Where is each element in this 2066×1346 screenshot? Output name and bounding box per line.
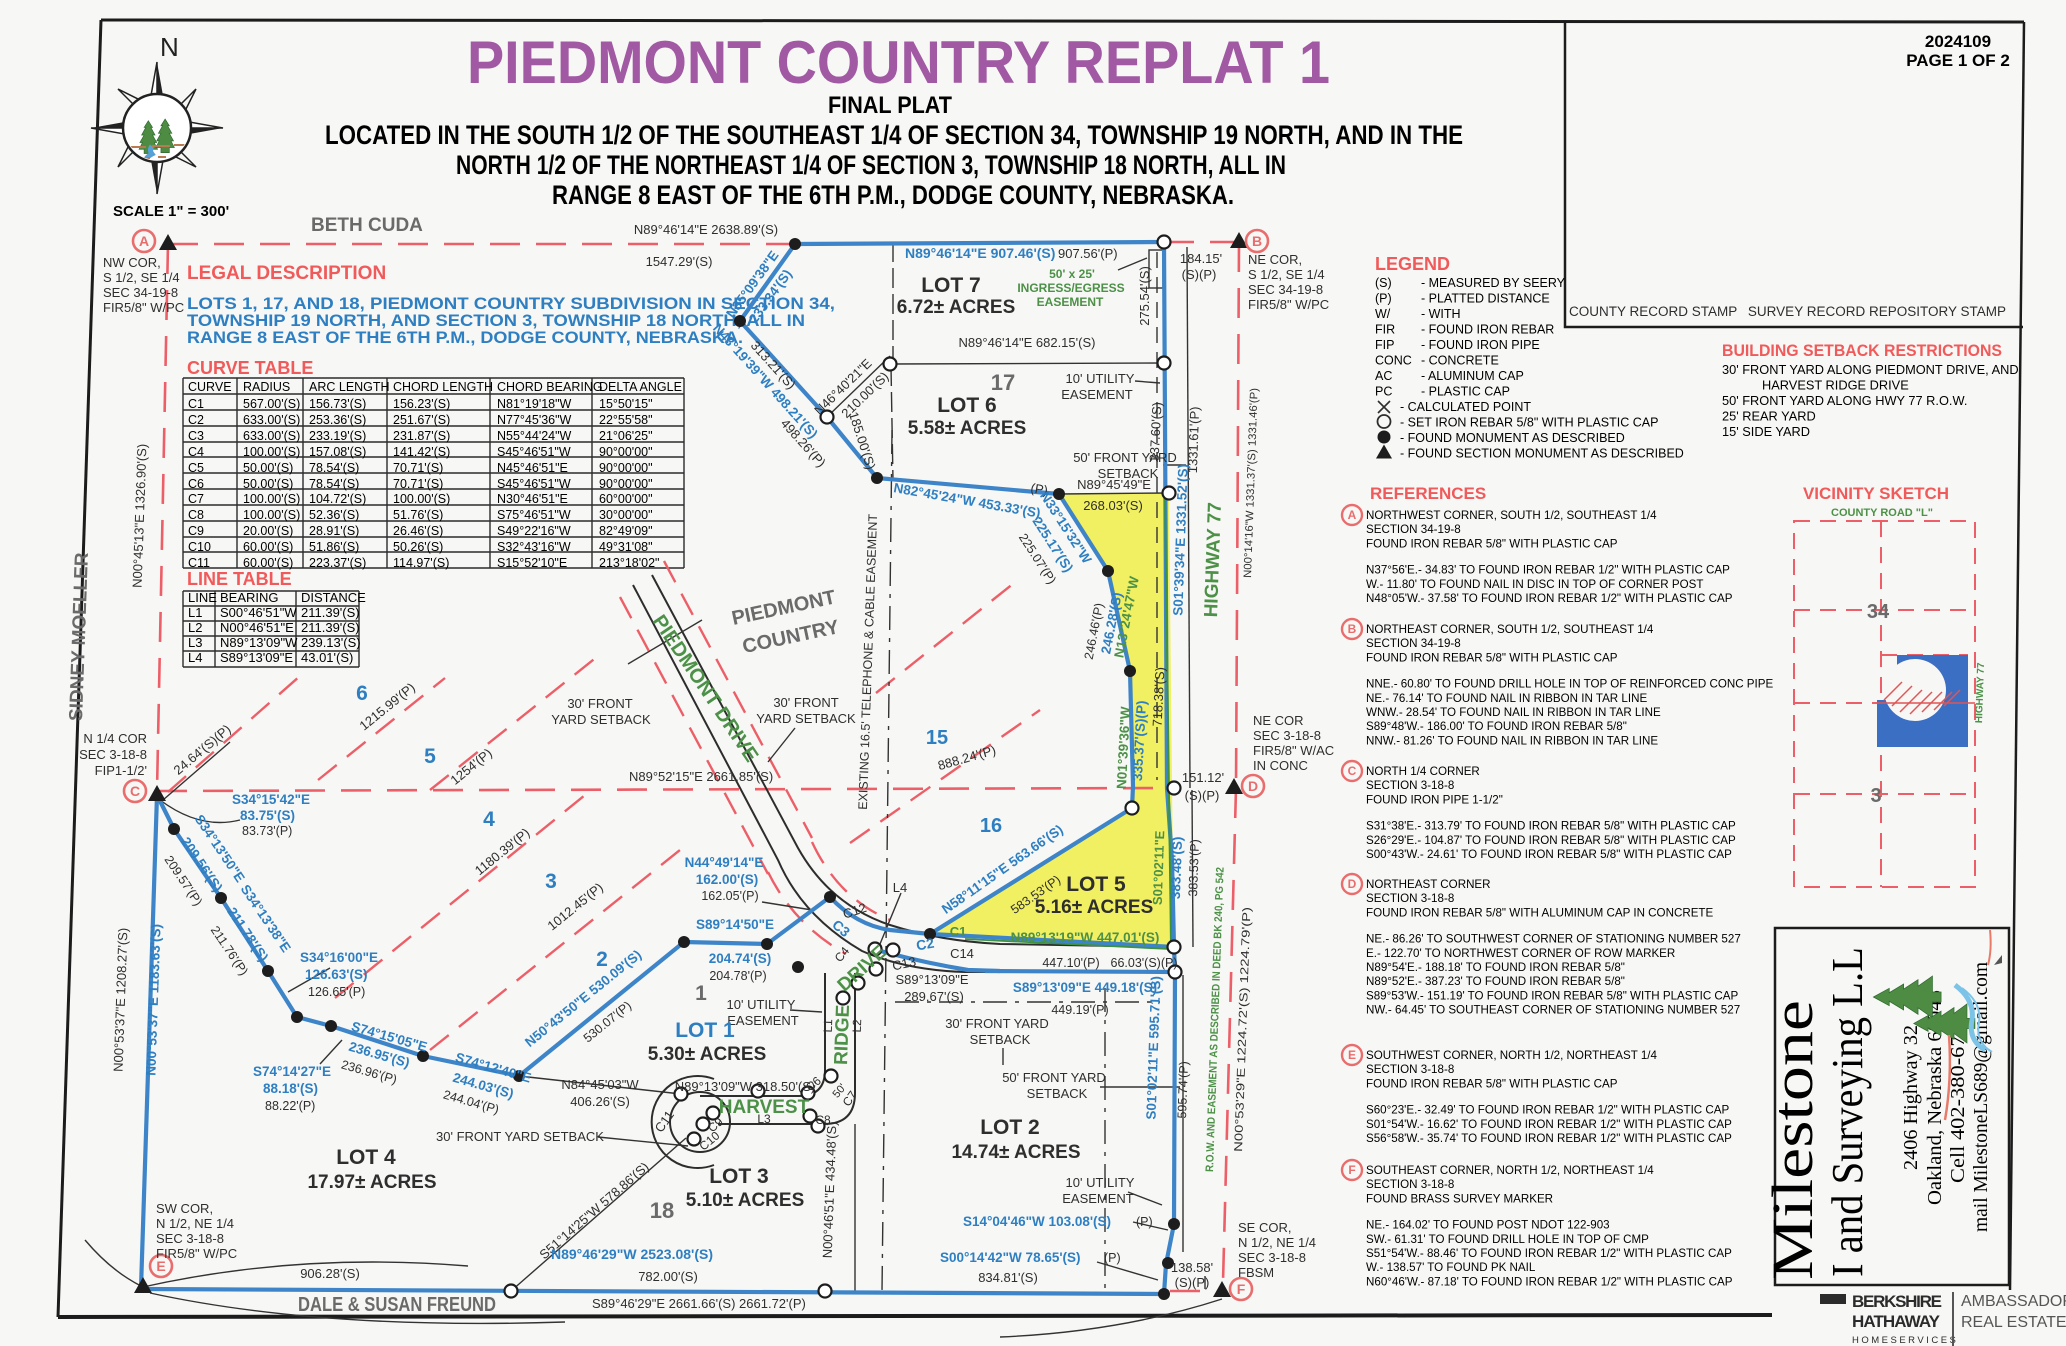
svg-text:BUILDING SETBACK RESTRICTIONS: BUILDING SETBACK RESTRICTIONS bbox=[1722, 341, 2002, 360]
svg-text:N 1/4 COR: N 1/4 COR bbox=[83, 731, 147, 746]
svg-text:1331.61'(P): 1331.61'(P) bbox=[1185, 406, 1202, 473]
svg-text:782.00'(S): 782.00'(S) bbox=[638, 1269, 698, 1284]
svg-text:FIP: FIP bbox=[1375, 338, 1394, 352]
svg-text:SEC 34-19-8: SEC 34-19-8 bbox=[103, 285, 178, 300]
svg-text:SE COR,: SE COR, bbox=[1238, 1220, 1291, 1235]
svg-text:BEARING: BEARING bbox=[220, 590, 279, 605]
svg-text:N 1/2, NE 1/4: N 1/2, NE 1/4 bbox=[156, 1216, 234, 1231]
svg-text:LEGEND: LEGEND bbox=[1375, 254, 1450, 274]
svg-text:N89°45'49"E: N89°45'49"E bbox=[1077, 477, 1151, 492]
svg-text:88.18'(S): 88.18'(S) bbox=[263, 1081, 318, 1096]
svg-text:43.01'(S): 43.01'(S) bbox=[301, 650, 353, 665]
svg-text:HIGHWAY 77: HIGHWAY 77 bbox=[1201, 502, 1226, 618]
svg-text:5.58± ACRES: 5.58± ACRES bbox=[908, 418, 1027, 439]
svg-text:83.75'(S): 83.75'(S) bbox=[240, 808, 295, 823]
svg-text:C10: C10 bbox=[188, 540, 211, 554]
svg-text:5.10± ACRES: 5.10± ACRES bbox=[686, 1190, 805, 1211]
svg-text:- SET IRON REBAR 5/8" WITH PLA: - SET IRON REBAR 5/8" WITH PLASTIC CAP bbox=[1400, 416, 1658, 430]
svg-text:SECTION 34-19-8: SECTION 34-19-8 bbox=[1366, 637, 1461, 650]
svg-text:I and Surveying L.L: I and Surveying L.L bbox=[1823, 947, 1872, 1277]
svg-text:FIR5/8" W/AC: FIR5/8" W/AC bbox=[1253, 743, 1334, 758]
svg-text:S26°29'E.- 104.87' TO FOUND IR: S26°29'E.- 104.87' TO FOUND IRON REBAR 5… bbox=[1366, 834, 1736, 847]
svg-text:184.15': 184.15' bbox=[1180, 251, 1222, 266]
svg-text:S 1/2, SE 1/4: S 1/2, SE 1/4 bbox=[1248, 267, 1325, 282]
svg-text:2024109: 2024109 bbox=[1925, 32, 1991, 51]
svg-text:17: 17 bbox=[991, 370, 1015, 395]
svg-text:CONC: CONC bbox=[1375, 354, 1412, 368]
svg-text:COUNTY RECORD STAMP: COUNTY RECORD STAMP bbox=[1569, 304, 1737, 319]
svg-text:RANGE 8 EAST OF THE 6TH P.M.,: RANGE 8 EAST OF THE 6TH P.M., DODGE COUN… bbox=[187, 329, 743, 347]
svg-text:N84°45'03"W: N84°45'03"W bbox=[561, 1077, 639, 1092]
svg-text:N48°05'W.- 37.58' TO FOUND IRO: N48°05'W.- 37.58' TO FOUND IRON REBAR 1/… bbox=[1366, 592, 1733, 605]
svg-text:15: 15 bbox=[926, 727, 948, 749]
svg-text:N45°46'51"E: N45°46'51"E bbox=[497, 461, 568, 475]
svg-text:S 1/2, SE 1/4: S 1/2, SE 1/4 bbox=[103, 270, 180, 285]
svg-text:RANGE 8 EAST OF THE 6TH P.M.,: RANGE 8 EAST OF THE 6TH P.M., DODGE COUN… bbox=[552, 180, 1234, 210]
svg-text:151.12': 151.12' bbox=[1182, 770, 1224, 785]
svg-text:10' UTILITY: 10' UTILITY bbox=[1066, 1175, 1135, 1190]
svg-text:25' REAR YARD: 25' REAR YARD bbox=[1722, 409, 1816, 424]
svg-text:50' x 25': 50' x 25' bbox=[1049, 267, 1095, 281]
svg-text:C5: C5 bbox=[188, 461, 204, 475]
svg-text:S00°46'51"W: S00°46'51"W bbox=[220, 605, 297, 620]
svg-text:NW.- 64.45' TO SOUTHEAST CORNE: NW.- 64.45' TO SOUTHEAST CORNER OF STATI… bbox=[1366, 1004, 1740, 1017]
svg-text:S15°52'10"E: S15°52'10"E bbox=[497, 556, 567, 570]
svg-text:SEC 3-18-8: SEC 3-18-8 bbox=[1253, 728, 1321, 743]
svg-text:NE.- 86.26' TO SOUTHWEST CORNE: NE.- 86.26' TO SOUTHWEST CORNER OF STATI… bbox=[1366, 933, 1741, 946]
svg-text:LOCATED IN THE SOUTH 1/2 OF TH: LOCATED IN THE SOUTH 1/2 OF THE SOUTHEAS… bbox=[325, 120, 1463, 150]
svg-text:C11: C11 bbox=[188, 556, 210, 570]
svg-text:406.26'(S): 406.26'(S) bbox=[570, 1094, 630, 1109]
svg-text:(S)(P): (S)(P) bbox=[1185, 788, 1220, 803]
svg-text:W.- 138.57' TO FOUND PK NAIL: W.- 138.57' TO FOUND PK NAIL bbox=[1366, 1261, 1536, 1274]
svg-text:449.19'(P): 449.19'(P) bbox=[1051, 1003, 1108, 1017]
svg-text:S01°54'W.- 16.62' TO FOUND IRO: S01°54'W.- 16.62' TO FOUND IRON REBAR 1/… bbox=[1366, 1118, 1732, 1131]
svg-text:S45°46'51"W: S45°46'51"W bbox=[497, 445, 571, 459]
svg-text:NORTH 1/4 CORNER: NORTH 1/4 CORNER bbox=[1366, 765, 1480, 778]
svg-text:L4: L4 bbox=[188, 650, 202, 665]
svg-text:30°00'00": 30°00'00" bbox=[599, 508, 653, 522]
svg-text:211.39'(S): 211.39'(S) bbox=[301, 620, 360, 635]
svg-text:447.10'(P): 447.10'(P) bbox=[1042, 956, 1099, 970]
svg-text:S45°46'51"W: S45°46'51"W bbox=[497, 477, 571, 491]
svg-text:HATHAWAY: HATHAWAY bbox=[1852, 1312, 1941, 1331]
svg-text:PC: PC bbox=[1375, 385, 1392, 399]
svg-text:28.91'(S): 28.91'(S) bbox=[309, 524, 359, 538]
svg-text:5: 5 bbox=[424, 745, 436, 768]
svg-text:HOMESERVICES: HOMESERVICES bbox=[1852, 1335, 1958, 1346]
svg-text:1: 1 bbox=[695, 982, 707, 1005]
svg-text:104.72'(S): 104.72'(S) bbox=[309, 492, 366, 506]
svg-text:F: F bbox=[1348, 1163, 1355, 1177]
svg-text:N30°46'51"E: N30°46'51"E bbox=[497, 492, 568, 506]
svg-text:SECTION 3-18-8: SECTION 3-18-8 bbox=[1366, 1178, 1454, 1191]
svg-text:10' UTILITY: 10' UTILITY bbox=[727, 997, 796, 1012]
svg-text:FOUND IRON REBAR 5/8" WITH PLA: FOUND IRON REBAR 5/8" WITH PLASTIC CAP bbox=[1366, 537, 1618, 550]
svg-text:- ALUMINUM CAP: - ALUMINUM CAP bbox=[1421, 369, 1524, 383]
svg-text:(S)(P): (S)(P) bbox=[1182, 267, 1217, 282]
svg-text:COUNTY ROAD "L": COUNTY ROAD "L" bbox=[1831, 507, 1933, 519]
svg-text:FOUND IRON REBAR 5/8" WITH PLA: FOUND IRON REBAR 5/8" WITH PLASTIC CAP bbox=[1366, 651, 1618, 664]
svg-text:E.- 122.70' TO NORTHWEST CORNE: E.- 122.70' TO NORTHWEST CORNER OF ROW M… bbox=[1366, 947, 1675, 960]
svg-text:S51°54'W.- 88.46' TO FOUND IRO: S51°54'W.- 88.46' TO FOUND IRON REBAR 1/… bbox=[1366, 1247, 1732, 1260]
svg-text:S89°13'09"E 449.18'(S): S89°13'09"E 449.18'(S) bbox=[1013, 980, 1157, 995]
svg-text:337.60'(S): 337.60'(S) bbox=[1146, 402, 1164, 462]
svg-text:239.13'(S): 239.13'(S) bbox=[301, 635, 361, 650]
svg-text:C1: C1 bbox=[950, 924, 967, 939]
svg-text:SECTION 34-19-8: SECTION 34-19-8 bbox=[1366, 523, 1461, 536]
svg-text:LINE: LINE bbox=[188, 590, 217, 605]
svg-text:126.63'(S): 126.63'(S) bbox=[305, 967, 368, 982]
svg-text:204.78'(P): 204.78'(P) bbox=[709, 969, 766, 983]
svg-text:253.36'(S): 253.36'(S) bbox=[309, 413, 366, 427]
svg-text:CURVE: CURVE bbox=[188, 380, 232, 394]
svg-text:DALE & SUSAN FREUND: DALE & SUSAN FREUND bbox=[298, 1294, 496, 1316]
svg-text:383.53'(P): 383.53'(P) bbox=[1186, 839, 1202, 897]
svg-text:S56°58'W.- 35.74' TO FOUND IRO: S56°58'W.- 35.74' TO FOUND IRON REBAR 1/… bbox=[1366, 1132, 1732, 1145]
svg-text:CURVE TABLE: CURVE TABLE bbox=[187, 358, 313, 378]
svg-text:14.74± ACRES: 14.74± ACRES bbox=[951, 1142, 1080, 1163]
svg-text:FOUND IRON REBAR 5/8" WITH PLA: FOUND IRON REBAR 5/8" WITH PLASTIC CAP bbox=[1366, 1077, 1618, 1090]
svg-text:100.00'(S): 100.00'(S) bbox=[243, 445, 300, 459]
svg-text:N44°49'14"E: N44°49'14"E bbox=[685, 855, 764, 870]
svg-text:15°50'15": 15°50'15" bbox=[599, 397, 653, 411]
svg-text:90°00'00": 90°00'00" bbox=[599, 461, 653, 475]
svg-text:N89°52'15"E 2661.85'(S): N89°52'15"E 2661.85'(S) bbox=[629, 769, 773, 784]
svg-text:5.30± ACRES: 5.30± ACRES bbox=[648, 1044, 767, 1065]
svg-text:N81°19'18"W: N81°19'18"W bbox=[497, 397, 572, 411]
svg-text:LOT 5: LOT 5 bbox=[1066, 873, 1126, 896]
svg-text:SEC 34-19-8: SEC 34-19-8 bbox=[1248, 282, 1323, 297]
svg-text:AMBASSADOR: AMBASSADOR bbox=[1961, 1293, 2066, 1310]
svg-text:F: F bbox=[1237, 1281, 1246, 1297]
svg-text:82°49'09": 82°49'09" bbox=[599, 524, 653, 538]
svg-text:718.38'(S): 718.38'(S) bbox=[1149, 667, 1167, 727]
svg-text:C8: C8 bbox=[188, 508, 204, 522]
svg-text:HIGHWAY 77: HIGHWAY 77 bbox=[1974, 662, 1987, 723]
svg-text:3: 3 bbox=[545, 870, 557, 893]
svg-text:AC: AC bbox=[1375, 369, 1392, 383]
svg-text:B: B bbox=[1252, 233, 1262, 249]
svg-text:49°31'08": 49°31'08" bbox=[599, 540, 653, 554]
svg-text:N37°56'E.- 34.83' TO FOUND IRO: N37°56'E.- 34.83' TO FOUND IRON REBAR 1/… bbox=[1366, 564, 1730, 577]
svg-text:78.54'(S): 78.54'(S) bbox=[309, 461, 359, 475]
svg-text:138.58': 138.58' bbox=[1171, 1260, 1213, 1275]
svg-text:N: N bbox=[160, 32, 179, 62]
svg-text:4: 4 bbox=[483, 808, 495, 831]
svg-text:NNE.- 60.80' TO FOUND DRILL HO: NNE.- 60.80' TO FOUND DRILL HOLE IN TOP … bbox=[1366, 678, 1773, 691]
svg-text:SETBACK: SETBACK bbox=[970, 1032, 1031, 1047]
svg-text:S89°48'W.- 186.00' TO FOUND IR: S89°48'W.- 186.00' TO FOUND IRON REBAR 5… bbox=[1366, 720, 1627, 733]
svg-text:S31°38'E.- 313.79' TO FOUND IR: S31°38'E.- 313.79' TO FOUND IRON REBAR 5… bbox=[1366, 820, 1736, 833]
svg-text:CHORD BEARING: CHORD BEARING bbox=[497, 380, 603, 394]
svg-text:50' FRONT YARD: 50' FRONT YARD bbox=[1002, 1070, 1106, 1085]
svg-text:SOUTHWEST CORNER, NORTH 1/2, N: SOUTHWEST CORNER, NORTH 1/2, NORTHEAST 1… bbox=[1366, 1049, 1658, 1062]
svg-text:IN CONC: IN CONC bbox=[1253, 758, 1308, 773]
svg-text:D: D bbox=[1248, 778, 1258, 794]
svg-text:20.00'(S): 20.00'(S) bbox=[243, 524, 293, 538]
svg-text:156.23'(S): 156.23'(S) bbox=[393, 397, 450, 411]
svg-text:(P): (P) bbox=[1136, 1215, 1153, 1229]
svg-text:ARC LENGTH: ARC LENGTH bbox=[309, 380, 390, 394]
svg-text:- WITH: - WITH bbox=[1421, 307, 1461, 321]
svg-text:50.26'(S): 50.26'(S) bbox=[393, 540, 443, 554]
svg-text:REFERENCES: REFERENCES bbox=[1370, 484, 1486, 503]
svg-text:C1: C1 bbox=[188, 397, 204, 411]
svg-text:6.72± ACRES: 6.72± ACRES bbox=[897, 297, 1016, 318]
svg-text:B: B bbox=[1348, 622, 1357, 636]
svg-text:NE.- 76.14' TO FOUND NAIL IN R: NE.- 76.14' TO FOUND NAIL IN RIBBON IN T… bbox=[1366, 692, 1647, 705]
svg-text:26.46'(S): 26.46'(S) bbox=[393, 524, 443, 538]
svg-text:NE.- 164.02' TO FOUND POST NDO: NE.- 164.02' TO FOUND POST NDOT 122-903 bbox=[1366, 1219, 1610, 1232]
svg-text:51.76'(S): 51.76'(S) bbox=[393, 508, 443, 522]
svg-text:NORTH 1/2 OF THE NORTHEAST 1/4: NORTH 1/2 OF THE NORTHEAST 1/4 OF SECTIO… bbox=[456, 150, 1286, 180]
svg-text:NW COR,: NW COR, bbox=[103, 255, 161, 270]
svg-text:30' FRONT YARD: 30' FRONT YARD bbox=[945, 1016, 1049, 1031]
svg-text:100.00'(S): 100.00'(S) bbox=[243, 492, 300, 506]
svg-text:LOT 4: LOT 4 bbox=[336, 1146, 396, 1169]
svg-text:N89°46'14"E 907.46'(S): N89°46'14"E 907.46'(S) bbox=[905, 245, 1055, 261]
svg-text:907.56'(P): 907.56'(P) bbox=[1058, 246, 1118, 261]
svg-text:70.71'(S): 70.71'(S) bbox=[393, 477, 443, 491]
svg-text:162.05'(P): 162.05'(P) bbox=[701, 889, 758, 903]
svg-text:595.74'(P): 595.74'(P) bbox=[1175, 1061, 1191, 1119]
svg-text:231.87'(S): 231.87'(S) bbox=[393, 429, 450, 443]
svg-text:18: 18 bbox=[650, 1198, 674, 1223]
svg-text:FOUND BRASS SURVEY MARKER: FOUND BRASS SURVEY MARKER bbox=[1366, 1192, 1553, 1205]
svg-text:S89°46'29"E 2661.66'(S) 2661: S89°46'29"E 2661.66'(S) 2661.72'(P) bbox=[592, 1296, 806, 1311]
svg-text:30' FRONT YARD SETBACK: 30' FRONT YARD SETBACK bbox=[436, 1129, 604, 1144]
svg-text:LINE TABLE: LINE TABLE bbox=[187, 569, 292, 589]
svg-text:633.00'(S): 633.00'(S) bbox=[243, 429, 300, 443]
svg-text:N89°54'E.- 188.18' TO FOUND IR: N89°54'E.- 188.18' TO FOUND IRON REBAR 5… bbox=[1366, 961, 1625, 974]
svg-text:- FOUND MONUMENT AS DESCRIBED: - FOUND MONUMENT AS DESCRIBED bbox=[1400, 431, 1625, 445]
svg-text:251.67'(S): 251.67'(S) bbox=[393, 413, 450, 427]
svg-text:L2: L2 bbox=[188, 620, 202, 635]
svg-text:EASEMENT: EASEMENT bbox=[727, 1013, 799, 1028]
svg-text:- CONCRETE: - CONCRETE bbox=[1421, 354, 1499, 368]
svg-text:66.03'(S)(P): 66.03'(S)(P) bbox=[1111, 956, 1178, 970]
svg-text:S00°43'W.- 24.61' TO FOUND IRO: S00°43'W.- 24.61' TO FOUND IRON REBAR 5/… bbox=[1366, 848, 1732, 861]
svg-text:- FOUND IRON REBAR: - FOUND IRON REBAR bbox=[1421, 323, 1554, 337]
svg-text:90°00'00": 90°00'00" bbox=[599, 477, 653, 491]
svg-text:L4: L4 bbox=[893, 880, 907, 895]
svg-text:C9: C9 bbox=[188, 524, 204, 538]
svg-text:S60°23'E.- 32.49' TO FOUND IRO: S60°23'E.- 32.49' TO FOUND IRON REBAR 1/… bbox=[1366, 1104, 1730, 1117]
svg-text:REAL ESTATE: REAL ESTATE bbox=[1961, 1314, 2066, 1331]
svg-text:W/: W/ bbox=[1375, 307, 1391, 321]
svg-text:233.19'(S): 233.19'(S) bbox=[309, 429, 366, 443]
svg-text:EASEMENT: EASEMENT bbox=[1037, 295, 1104, 309]
svg-text:633.00'(S): 633.00'(S) bbox=[243, 413, 300, 427]
svg-text:L3: L3 bbox=[188, 635, 202, 650]
svg-text:(P): (P) bbox=[1104, 1251, 1121, 1265]
svg-text:60°00'00": 60°00'00" bbox=[599, 492, 653, 506]
svg-text:N89°46'14"E 682.15'(S): N89°46'14"E 682.15'(S) bbox=[959, 335, 1096, 350]
svg-text:88.22'(P): 88.22'(P) bbox=[265, 1099, 315, 1113]
svg-text:FBSM: FBSM bbox=[1238, 1265, 1274, 1280]
svg-text:211.39'(S): 211.39'(S) bbox=[301, 605, 360, 620]
svg-text:- PLATTED DISTANCE: - PLATTED DISTANCE bbox=[1421, 292, 1550, 306]
svg-text:(S): (S) bbox=[1375, 276, 1392, 290]
svg-text:- FOUND SECTION MONUMENT AS DE: - FOUND SECTION MONUMENT AS DESCRIBED bbox=[1400, 447, 1684, 461]
svg-text:60.00'(S): 60.00'(S) bbox=[243, 556, 293, 570]
svg-text:FIR5/8" W/PC: FIR5/8" W/PC bbox=[1248, 297, 1329, 312]
svg-text:N89°46'29"W 2523.08'(S): N89°46'29"W 2523.08'(S) bbox=[551, 1246, 713, 1262]
svg-text:275.54'(S): 275.54'(S) bbox=[1137, 266, 1152, 326]
svg-text:17.97± ACRES: 17.97± ACRES bbox=[307, 1172, 436, 1193]
svg-text:LEGAL DESCRIPTION: LEGAL DESCRIPTION bbox=[187, 263, 386, 284]
svg-text:C14: C14 bbox=[950, 946, 974, 961]
svg-text:S49°22'16"W: S49°22'16"W bbox=[497, 524, 571, 538]
svg-text:162.00'(S): 162.00'(S) bbox=[696, 872, 759, 887]
svg-text:SECTION 3-18-8: SECTION 3-18-8 bbox=[1366, 892, 1454, 905]
svg-text:SECTION 3-18-8: SECTION 3-18-8 bbox=[1366, 1063, 1454, 1076]
svg-text:EASEMENT: EASEMENT bbox=[1062, 1191, 1134, 1206]
svg-text:C: C bbox=[1348, 764, 1357, 778]
svg-text:E: E bbox=[1348, 1048, 1356, 1062]
svg-text:50' FRONT YARD ALONG HWY 77 R.: 50' FRONT YARD ALONG HWY 77 R.O.W. bbox=[1722, 393, 1967, 408]
svg-text:YARD SETBACK: YARD SETBACK bbox=[551, 712, 651, 727]
svg-text:30' FRONT: 30' FRONT bbox=[567, 696, 632, 711]
svg-text:51.86'(S): 51.86'(S) bbox=[309, 540, 359, 554]
svg-text:N55°44'24"W: N55°44'24"W bbox=[497, 429, 572, 443]
svg-text:30' FRONT YARD ALONG PIEDMONT: 30' FRONT YARD ALONG PIEDMONT DRIVE, AND bbox=[1722, 362, 2019, 377]
svg-text:70.71'(S): 70.71'(S) bbox=[393, 461, 443, 475]
svg-text:N77°45'36"W: N77°45'36"W bbox=[497, 413, 572, 427]
svg-text:1547.29'(S): 1547.29'(S) bbox=[646, 254, 713, 269]
svg-text:(S)(P): (S)(P) bbox=[1175, 1275, 1210, 1290]
svg-text:SW.- 61.31' TO FOUND DRILL HOL: SW.- 61.31' TO FOUND DRILL HOLE IN TOP O… bbox=[1366, 1233, 1649, 1246]
svg-text:Milestone: Milestone bbox=[1760, 1000, 1825, 1280]
svg-text:100.00'(S): 100.00'(S) bbox=[243, 508, 300, 522]
svg-text:LOT 7: LOT 7 bbox=[921, 274, 981, 297]
svg-text:- CALCULATED POINT: - CALCULATED POINT bbox=[1400, 400, 1531, 414]
svg-text:L1: L1 bbox=[188, 605, 202, 620]
svg-text:100.00'(S): 100.00'(S) bbox=[393, 492, 450, 506]
svg-text:213°18'02": 213°18'02" bbox=[599, 556, 660, 570]
svg-text:21°06'25": 21°06'25" bbox=[599, 429, 653, 443]
svg-text:FIR5/8" W/PC: FIR5/8" W/PC bbox=[156, 1246, 237, 1261]
svg-text:FIP1-1/2': FIP1-1/2' bbox=[95, 763, 147, 778]
svg-text:S01°02'11"E: S01°02'11"E bbox=[1150, 830, 1168, 905]
svg-text:HARVEST: HARVEST bbox=[719, 1097, 810, 1118]
svg-text:10' UTILITY: 10' UTILITY bbox=[1066, 371, 1135, 386]
svg-text:SETBACK: SETBACK bbox=[1027, 1086, 1088, 1101]
svg-text:RIDGE: RIDGE bbox=[831, 1004, 854, 1065]
svg-text:NNW.- 81.26' TO FOUND NAIL IN: NNW.- 81.26' TO FOUND NAIL IN RIBBON IN … bbox=[1366, 734, 1658, 747]
svg-text:S32°43'16"W: S32°43'16"W bbox=[497, 540, 571, 554]
svg-text:NE COR: NE COR bbox=[1253, 713, 1304, 728]
svg-text:S89°13'09"E: S89°13'09"E bbox=[895, 972, 968, 987]
svg-text:289.67'(S): 289.67'(S) bbox=[904, 989, 964, 1004]
svg-text:N89°52'E.- 387.23' TO FOUND IR: N89°52'E.- 387.23' TO FOUND IRON REBAR 5… bbox=[1366, 975, 1625, 988]
svg-text:DELTA ANGLE: DELTA ANGLE bbox=[599, 380, 682, 394]
svg-text:5.16± ACRES: 5.16± ACRES bbox=[1035, 897, 1154, 918]
svg-text:SEC 3-18-8: SEC 3-18-8 bbox=[79, 747, 147, 762]
svg-text:YARD SETBACK: YARD SETBACK bbox=[756, 711, 856, 726]
svg-text:34: 34 bbox=[1867, 601, 1890, 623]
svg-text:S14°04'46"W 103.08'(S): S14°04'46"W 103.08'(S) bbox=[963, 1214, 1111, 1229]
svg-text:S89°14'50"E: S89°14'50"E bbox=[696, 917, 774, 932]
svg-text:S34°16'00"E: S34°16'00"E bbox=[300, 950, 378, 965]
svg-text:60.00'(S): 60.00'(S) bbox=[243, 540, 293, 554]
svg-text:N89°13'19"W 447.01'(S): N89°13'19"W 447.01'(S) bbox=[1011, 930, 1160, 945]
svg-text:N 1/2, NE 1/4: N 1/2, NE 1/4 bbox=[1238, 1235, 1316, 1250]
svg-text:157.08'(S): 157.08'(S) bbox=[309, 445, 366, 459]
svg-text:RADIUS: RADIUS bbox=[243, 380, 290, 394]
svg-text:C6: C6 bbox=[188, 477, 204, 491]
svg-text:N60°46'W.- 87.18' TO FOUND IRO: N60°46'W.- 87.18' TO FOUND IRON REBAR 1/… bbox=[1366, 1275, 1733, 1288]
svg-text:WNW.- 28.54' TO FOUND NAIL IN: WNW.- 28.54' TO FOUND NAIL IN RIBBON IN … bbox=[1366, 706, 1661, 719]
svg-text:15' SIDE YARD: 15' SIDE YARD bbox=[1722, 424, 1810, 439]
svg-text:S00°14'42"W 78.65'(S): S00°14'42"W 78.65'(S) bbox=[940, 1250, 1081, 1265]
svg-text:- PLASTIC CAP: - PLASTIC CAP bbox=[1421, 385, 1510, 399]
svg-text:268.03'(S): 268.03'(S) bbox=[1083, 498, 1143, 513]
svg-text:CHORD LENGTH: CHORD LENGTH bbox=[393, 380, 493, 394]
svg-text:30' FRONT: 30' FRONT bbox=[773, 695, 838, 710]
svg-text:SW COR,: SW COR, bbox=[156, 1201, 213, 1216]
svg-text:VICINITY SKETCH: VICINITY SKETCH bbox=[1803, 484, 1949, 503]
svg-text:SCALE 1" = 300': SCALE 1" = 300' bbox=[113, 203, 229, 220]
svg-text:204.74'(S): 204.74'(S) bbox=[709, 951, 772, 966]
svg-text:SURVEY RECORD REPOSITORY STAMP: SURVEY RECORD REPOSITORY STAMP bbox=[1748, 304, 2006, 319]
svg-text:906.28'(S): 906.28'(S) bbox=[300, 1266, 360, 1281]
svg-text:HARVEST RIDGE DRIVE: HARVEST RIDGE DRIVE bbox=[1762, 378, 1909, 393]
svg-text:3: 3 bbox=[1870, 785, 1881, 807]
svg-text:TOWNSHIP 19 NORTH, AND SECTION: TOWNSHIP 19 NORTH, AND SECTION 3, TOWNSH… bbox=[187, 312, 805, 330]
svg-text:mail MilestoneLS689@gmail.com: mail MilestoneLS689@gmail.com bbox=[1970, 962, 1992, 1232]
svg-text:78.54'(S): 78.54'(S) bbox=[309, 477, 359, 491]
svg-text:223.37'(S): 223.37'(S) bbox=[309, 556, 366, 570]
svg-text:LOT 6: LOT 6 bbox=[937, 394, 997, 417]
svg-text:22°55'58": 22°55'58" bbox=[599, 413, 653, 427]
svg-text:6: 6 bbox=[356, 682, 368, 705]
svg-text:C7: C7 bbox=[188, 492, 204, 506]
svg-text:N89°13'09"W 318.50'(S): N89°13'09"W 318.50'(S) bbox=[675, 1079, 816, 1094]
svg-text:C2: C2 bbox=[915, 935, 936, 954]
svg-text:FINAL PLAT: FINAL PLAT bbox=[828, 92, 952, 119]
svg-text:NORTHWEST CORNER, SOUTH 1/2, S: NORTHWEST CORNER, SOUTH 1/2, SOUTHEAST 1… bbox=[1366, 509, 1657, 522]
svg-text:114.97'(S): 114.97'(S) bbox=[393, 556, 449, 570]
svg-text:N00°46'51"E: N00°46'51"E bbox=[220, 620, 294, 635]
svg-text:SEC 3-18-8: SEC 3-18-8 bbox=[156, 1231, 224, 1246]
svg-text:NORTHEAST CORNER: NORTHEAST CORNER bbox=[1366, 878, 1491, 891]
svg-text:LOT 1: LOT 1 bbox=[675, 1019, 735, 1042]
svg-text:126.65'(P): 126.65'(P) bbox=[308, 985, 365, 999]
svg-text:FOUND IRON REBAR 5/8" WITH ALU: FOUND IRON REBAR 5/8" WITH ALUMINUM CAP … bbox=[1366, 906, 1714, 919]
svg-text:INGRESS/EGRESS: INGRESS/EGRESS bbox=[1017, 281, 1124, 295]
svg-text:SOUTHEAST CORNER, NORTH 1/2, N: SOUTHEAST CORNER, NORTH 1/2, NORTHEAST 1… bbox=[1366, 1164, 1654, 1177]
svg-text:PIEDMONT COUNTRY REPLAT 1: PIEDMONT COUNTRY REPLAT 1 bbox=[467, 29, 1330, 96]
svg-text:EASEMENT: EASEMENT bbox=[1061, 387, 1133, 402]
svg-text:83.73'(P): 83.73'(P) bbox=[242, 824, 292, 838]
svg-text:383.48'(S): 383.48'(S) bbox=[1168, 836, 1185, 899]
svg-text:141.42'(S): 141.42'(S) bbox=[393, 445, 450, 459]
svg-text:- MEASURED BY SEERY: - MEASURED BY SEERY bbox=[1421, 276, 1566, 290]
svg-text:FIR: FIR bbox=[1375, 323, 1395, 337]
svg-text:N89°46'14"E 2638.89'(S): N89°46'14"E 2638.89'(S) bbox=[634, 222, 778, 237]
svg-text:SEC 3-18-8: SEC 3-18-8 bbox=[1238, 1250, 1306, 1265]
svg-text:2406 Highway 32: 2406 Highway 32 bbox=[1900, 1025, 1922, 1170]
svg-text:- FOUND IRON PIPE: - FOUND IRON PIPE bbox=[1421, 338, 1540, 352]
svg-text:PAGE 1 OF 2: PAGE 1 OF 2 bbox=[1906, 51, 2010, 70]
svg-text:C2: C2 bbox=[188, 413, 204, 427]
svg-text:DISTANCE: DISTANCE bbox=[301, 590, 366, 605]
svg-text:16: 16 bbox=[980, 815, 1002, 837]
svg-text:2: 2 bbox=[596, 948, 608, 971]
svg-text:BETH CUDA: BETH CUDA bbox=[311, 215, 423, 236]
